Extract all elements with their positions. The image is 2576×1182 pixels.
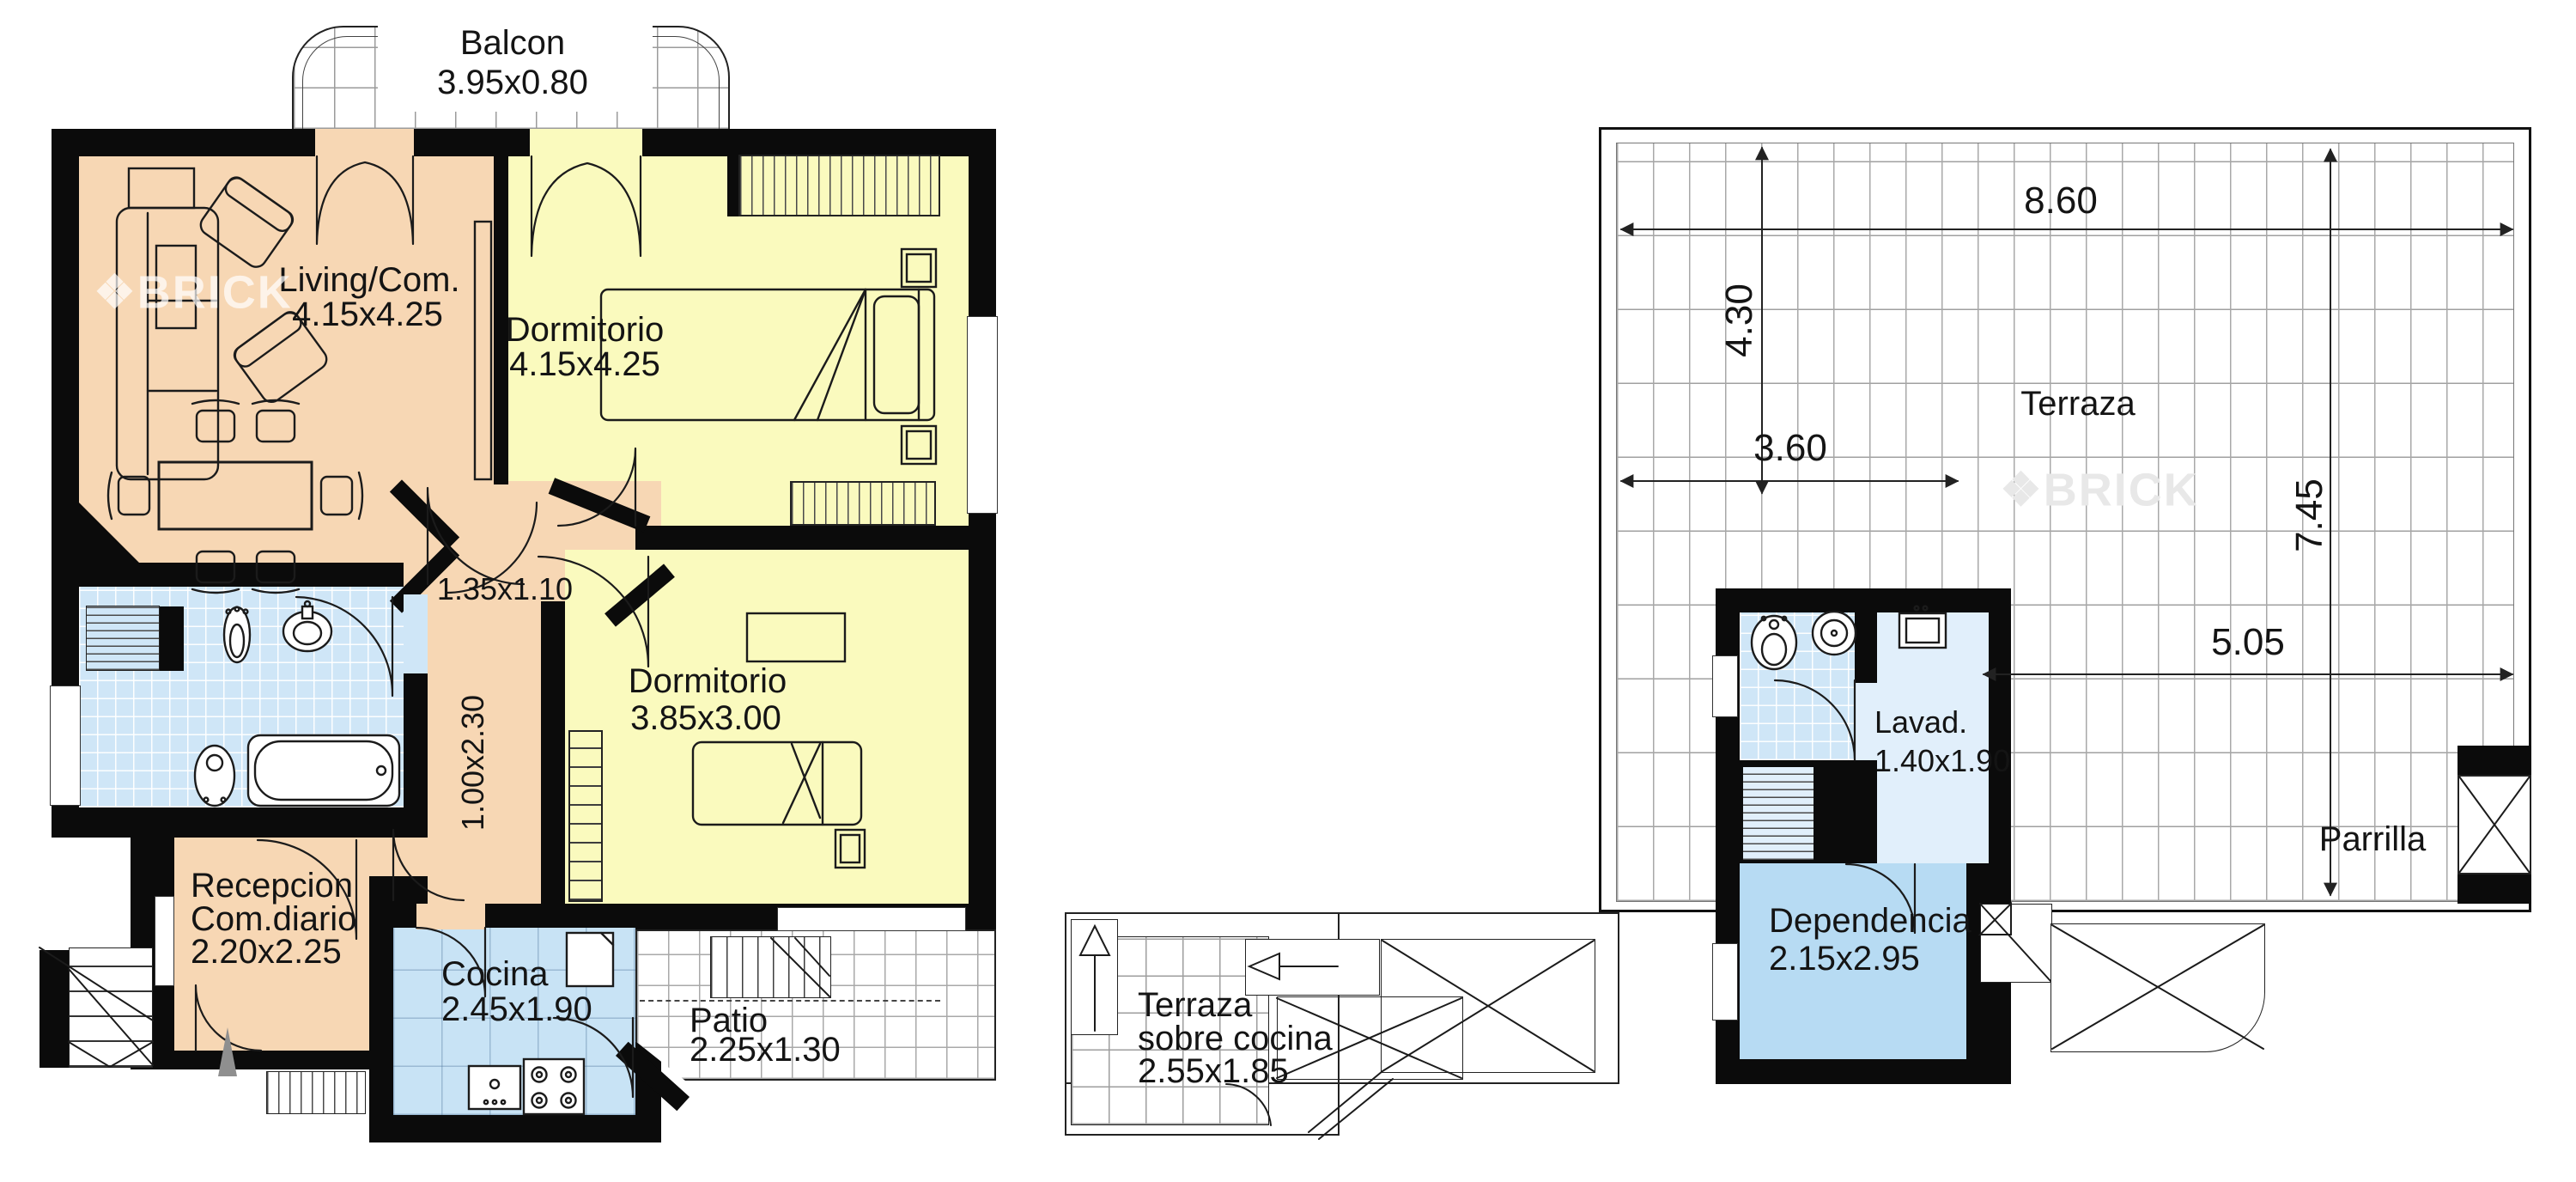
bathroom-closet [86,606,160,671]
wall-bedroom-divider [635,526,969,550]
living-label: Living/Com. [278,262,459,298]
dim-7-45: 7.45 [2290,478,2330,552]
laundry-dims: 1.40x1.90 [1874,745,2010,777]
living-dims: 4.15x4.25 [292,296,443,332]
grill-box [2458,775,2531,874]
bedroom1-label: Dormitorio [506,312,664,348]
gap-bathroom-door [404,594,428,673]
roof-terrace-label: Terraza [2020,386,2135,422]
window-bathroom-left [50,685,81,806]
window-bedroom1-right [967,316,998,514]
bedroom1-dims: 4.15x4.25 [509,346,660,382]
gap-corridor-kitchen-door [416,904,485,929]
bedroom2-label: Dormitorio [629,663,787,699]
mid-terrace-label-2: sobre cocina [1138,1021,1333,1057]
mid-stair-tower [1071,919,1118,1035]
brick-logo-icon: ❖ [94,267,137,319]
bathroom-closet-wall [160,606,184,671]
roof-room-bathroom [1740,612,1855,760]
brick-watermark-right: ❖BRICK [2000,463,2198,517]
window-roofbath-left [1712,655,1738,717]
balcony-label: Balcon [460,25,565,61]
grill-wall-bottom [2458,873,2531,904]
wardrobe-bedroom1-top [738,155,940,216]
gap-bedroom1-balcony-door [530,129,642,158]
patio-stair [710,936,831,998]
wall-bedroom1-stub [727,156,739,216]
roof-block-hatch [1743,767,1814,860]
dim-5-05: 5.05 [2211,623,2285,662]
roof-lower-x [2050,923,2265,1052]
brick-watermark-left: ❖BRICK [94,265,292,320]
window-reception-left [155,896,174,986]
grill-label: Parrilla [2319,821,2426,857]
bedroom2-dims: 3.85x3.00 [630,700,781,736]
kitchen-label: Cocina [441,956,549,992]
brick-logo-icon-2: ❖ [2000,465,2043,516]
hall-dims: 1.35x1.10 [437,573,573,606]
entry-steps [266,1071,366,1114]
corridor-dims: 1.00x2.30 [457,695,489,831]
exterior-stair-wall [39,950,69,1068]
dim-4-30: 4.30 [1720,283,1759,357]
mid-roof-x-large [1381,939,1595,1073]
mid-stair-run [1245,939,1380,996]
patio-dims: 2.25x1.30 [690,1032,841,1068]
balcony-dims: 3.95x0.80 [437,64,588,101]
mid-terrace-label-1: Terraza [1138,987,1252,1023]
window-bedroom2-patio [777,907,966,931]
wardrobe-bedroom2-left [568,730,603,902]
reception-dims: 2.20x2.25 [191,934,342,970]
exterior-stair [69,947,153,1068]
gap-reception-corridor-door [369,838,428,876]
grill-wall-top [2458,746,2531,777]
floorplan-page: Balcon 3.95x0.80 Living/Com. 4.15x4.25 D… [0,0,2576,1182]
gap-living-balcony-door [315,129,414,158]
reception-label-2: Com.diario [191,901,356,937]
laundry-label: Lavad. [1874,706,1967,739]
reception-label-1: Recepcion [191,868,353,904]
dim-8-60: 8.60 [2024,181,2098,221]
dependency-dims: 2.15x2.95 [1769,941,1920,977]
roof-stair [1980,904,2052,983]
wardrobe-bedroom1-bottom [790,481,936,526]
dim-3-60: 3.60 [1753,429,1827,468]
patio-dashed-line [640,1000,940,1002]
kitchen-dims: 2.45x1.90 [441,991,592,1027]
dependency-label: Dependencia [1769,903,1971,939]
window-dependency-left [1712,943,1738,1021]
mid-terrace-dims: 2.55x1.85 [1138,1053,1289,1089]
